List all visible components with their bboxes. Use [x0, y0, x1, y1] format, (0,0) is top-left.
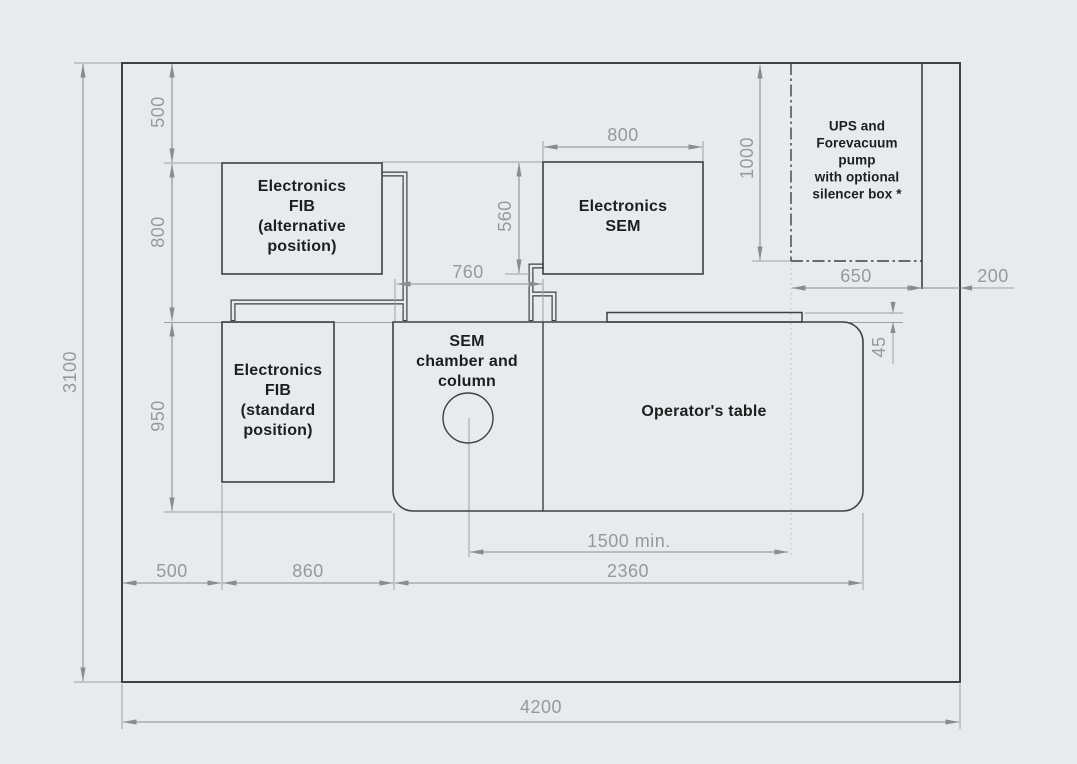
dim-sem-depth: 560 — [496, 200, 514, 232]
dim-right-gap: 200 — [977, 267, 1009, 285]
dim-shelf-depth: 45 — [870, 336, 888, 357]
dim-ups-height: 1000 — [738, 137, 756, 179]
dim-top-offset: 500 — [149, 96, 167, 128]
dim-room-height: 3100 — [61, 351, 79, 393]
label-ups-forevacuum: UPS and Forevacuum pump with optional si… — [792, 118, 922, 203]
label-sem-chamber: SEM chamber and column — [416, 332, 518, 392]
dim-fib-zone-width: 860 — [292, 562, 324, 580]
dim-sem-width: 800 — [607, 126, 639, 144]
dim-ups-width: 650 — [840, 267, 872, 285]
monitor-shelf — [607, 313, 802, 323]
dim-fib-std-drop: 950 — [149, 400, 167, 432]
label-fib-alternative: Electronics FIB (alternative position) — [258, 177, 346, 257]
dim-workspace-min: 1500 min. — [587, 532, 671, 550]
dim-fib-alt-drop: 800 — [149, 216, 167, 248]
floorplan-drawing: Electronics FIB (alternative position) E… — [0, 0, 1077, 764]
label-fib-standard: Electronics FIB (standard position) — [234, 361, 322, 441]
dim-table-width: 2360 — [607, 562, 649, 580]
dim-room-width: 4200 — [520, 698, 562, 716]
dim-chamber-width: 760 — [452, 263, 484, 281]
dim-left-gap: 500 — [156, 562, 188, 580]
label-operators-table: Operator's table — [641, 402, 766, 422]
sem-column-circle — [443, 393, 493, 443]
label-sem-electronics: Electronics SEM — [579, 197, 667, 237]
